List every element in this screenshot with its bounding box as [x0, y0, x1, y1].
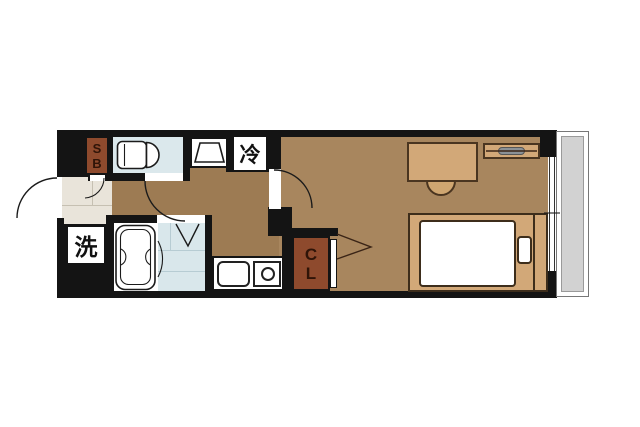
- entrance-tile-line: [92, 178, 93, 205]
- closet-door: [330, 239, 337, 288]
- pillow: [517, 236, 532, 264]
- wall: [540, 130, 557, 157]
- shower-grid-line: [158, 250, 205, 251]
- shoe-box-label: SB: [91, 141, 104, 171]
- desk: [407, 142, 478, 182]
- washbasin-box: [190, 137, 228, 168]
- shower-area-floor: [158, 223, 205, 291]
- bed-headboard-line: [533, 215, 535, 290]
- mattress: [419, 220, 516, 287]
- wall: [266, 130, 281, 172]
- main-room-door-opening: [269, 169, 281, 209]
- entrance-door-arc: [17, 178, 57, 218]
- floor-plan: SB 冷 洗 CL: [0, 0, 640, 427]
- closet-label: CL: [303, 245, 320, 283]
- shower-grid-line: [158, 271, 205, 272]
- balcony-floor: [561, 136, 584, 292]
- refrigerator-space: 冷: [232, 135, 268, 172]
- wall: [284, 228, 338, 236]
- wall: [205, 215, 212, 298]
- refrigerator-label: 冷: [240, 139, 261, 169]
- window-frame-line: [549, 157, 550, 271]
- closet: CL: [292, 236, 330, 291]
- washing-machine-space: 洗: [66, 225, 106, 265]
- shower-grid-line: [170, 223, 171, 250]
- wall-top: [57, 130, 557, 137]
- window-frame-line: [554, 157, 555, 271]
- kitchen-sink: [217, 261, 250, 287]
- tv-icon: [498, 147, 525, 155]
- toilet-room-door-opening: [145, 173, 183, 181]
- stove-burner-icon: [261, 267, 275, 281]
- bathroom-door-opening: [157, 215, 205, 223]
- bathtub-area-floor: [114, 223, 158, 291]
- entrance-floor: [62, 177, 112, 224]
- shoe-box: SB: [85, 136, 109, 175]
- washing-machine-label: 洗: [75, 228, 98, 262]
- toilet-room-floor: [112, 136, 183, 177]
- entrance-step-line: [62, 205, 112, 206]
- wall-bottom: [57, 291, 557, 298]
- wall: [57, 130, 88, 177]
